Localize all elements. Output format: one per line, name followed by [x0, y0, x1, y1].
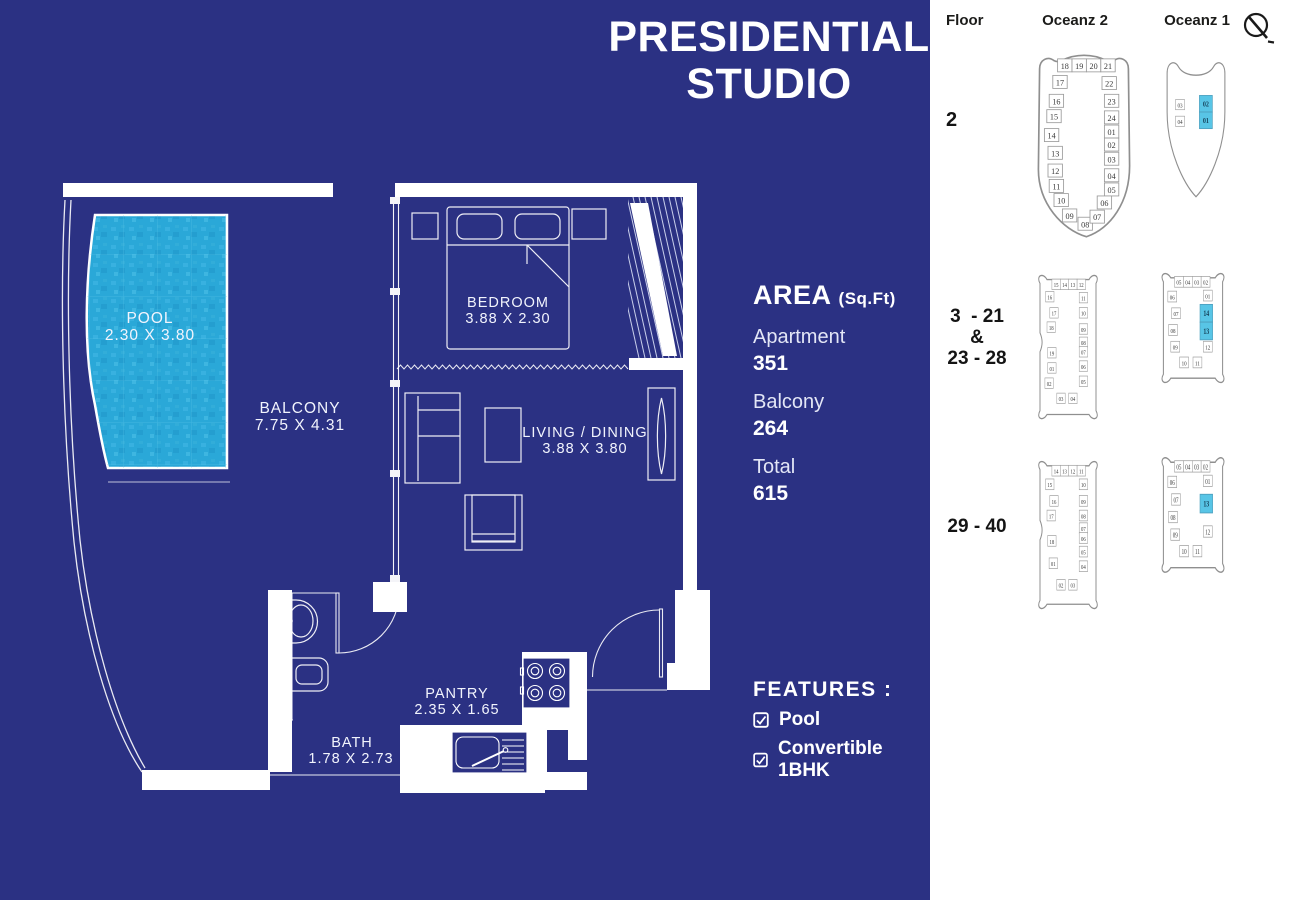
feature-item-convertible: Convertible 1BHK — [753, 738, 930, 782]
room-label-pantry: PANTRY — [425, 686, 488, 702]
unit-number: 05 — [1176, 280, 1181, 287]
unit-number: 02 — [1108, 141, 1116, 150]
wardrobe-zigzag — [397, 365, 628, 369]
pillow-left — [457, 214, 502, 239]
checkbox-checked-icon — [753, 752, 768, 768]
unit-number: 06 — [1170, 480, 1175, 487]
wall-pantry-step — [545, 772, 587, 790]
title-line-1: PRESIDENTIAL — [608, 14, 930, 61]
armchair-seat — [472, 495, 515, 542]
room-dims-balcony: 7.75 X 4.31 — [255, 417, 345, 434]
area-section: AREA (Sq.Ft) Apartment 351 Balcony 264 T… — [753, 280, 896, 506]
unit-number: 13 — [1203, 500, 1209, 509]
unit-number: 05 — [1108, 186, 1116, 195]
unit-number: 04 — [1177, 120, 1182, 127]
wall-bedroom-right — [629, 358, 697, 370]
coffee-table — [485, 408, 521, 462]
unit-number: 07 — [1081, 350, 1086, 357]
floor-range-label: 3 - 21&23 - 28 — [942, 306, 1012, 369]
unit-number: 04 — [1185, 465, 1190, 472]
unit-number: 08 — [1171, 328, 1176, 335]
unit-number: 24 — [1108, 114, 1116, 123]
unit-number: 09 — [1173, 345, 1178, 352]
bed — [447, 207, 569, 349]
floor-range-line: 2 — [946, 110, 1006, 131]
floor-locator-panel: Floor Oceanz 2 Oceanz 1 2181920211722162… — [930, 0, 1316, 900]
unit-number: 13 — [1071, 283, 1076, 290]
unit-number: 13 — [1062, 469, 1067, 476]
unit-number: 16 — [1047, 295, 1052, 302]
bedroom-furniture — [412, 207, 606, 349]
floorplate-diagram-oceanz1-row1: 03040201 — [1158, 54, 1234, 206]
unit-number: 08 — [1081, 514, 1086, 521]
room-label-living: LIVING / DINING — [522, 425, 647, 441]
unit-number: 12 — [1051, 167, 1059, 176]
unit-number: 09 — [1066, 212, 1074, 221]
wall-bottom-balcony — [142, 770, 270, 790]
unit-number: 02 — [1203, 465, 1208, 472]
area-value: 615 — [753, 482, 896, 506]
wall-bottom-kitchen — [400, 775, 545, 793]
unit-number: 08 — [1081, 220, 1089, 229]
room-dims-bedroom: 3.88 X 2.30 — [465, 311, 550, 327]
unit-number: 06 — [1100, 199, 1108, 208]
unit-number: 04 — [1071, 397, 1076, 404]
floorplate-diagram-oceanz1-row3: 05040302060107130812091011 — [1156, 454, 1230, 578]
unit-number: 09 — [1081, 327, 1086, 334]
wall-top-left — [63, 183, 333, 197]
room-label-balcony: BALCONY — [259, 400, 340, 417]
unit-number: 03 — [1059, 397, 1064, 404]
unit-number: 09 — [1173, 533, 1178, 540]
nightstand-right — [572, 209, 606, 239]
sofa — [405, 393, 460, 483]
unit-number: 14 — [1062, 283, 1067, 290]
locator-header-floor: Floor — [946, 12, 984, 29]
wall-right — [683, 183, 697, 590]
unit-number: 15 — [1050, 113, 1058, 122]
wall-top-right — [395, 183, 695, 197]
unit-number: 02 — [1047, 381, 1052, 388]
locator-header-oceanz2: Oceanz 2 — [1038, 12, 1112, 29]
floor-range-label: 29 - 40 — [942, 516, 1012, 537]
unit-number: 11 — [1081, 296, 1086, 303]
unit-number: 01 — [1205, 479, 1210, 486]
blueprint-panel: PRESIDENTIAL STUDIO — [0, 0, 930, 900]
locator-header-oceanz1: Oceanz 1 — [1161, 12, 1233, 29]
unit-number: 22 — [1105, 80, 1113, 89]
area-label: Apartment — [753, 326, 896, 349]
wall-entry-step — [667, 663, 710, 690]
unit-number: 08 — [1171, 516, 1176, 523]
unit-number: 10 — [1182, 361, 1187, 368]
floor-range-line: 23 - 28 — [942, 348, 1012, 369]
unit-number: 21 — [1104, 62, 1112, 71]
hull-outline — [1167, 63, 1225, 197]
unit-number: 10 — [1057, 197, 1065, 206]
pool — [87, 215, 230, 482]
unit-number: 04 — [1108, 172, 1116, 181]
unit-number: 12 — [1079, 283, 1084, 290]
unit-number: 06 — [1081, 536, 1086, 543]
floorplate-diagram-oceanz1-row2: 0504030206010714081309121011 — [1156, 270, 1230, 388]
area-heading-unit: (Sq.Ft) — [839, 289, 896, 308]
room-dims-living: 3.88 X 3.80 — [542, 441, 627, 457]
unit-number: 03 — [1177, 103, 1182, 110]
unit-number: 23 — [1108, 97, 1116, 106]
page: PRESIDENTIAL STUDIO — [0, 0, 1316, 900]
room-dims-pool: 2.30 X 3.80 — [105, 327, 195, 344]
entry-door-leaf — [660, 609, 663, 677]
floor-range-line: 3 - 21 — [942, 306, 1012, 327]
unit-number: 06 — [1170, 295, 1175, 302]
unit-number: 17 — [1056, 79, 1064, 88]
unit-number: 10 — [1081, 483, 1086, 490]
room-label-bath: BATH — [331, 735, 373, 751]
unit-number: 02 — [1203, 101, 1210, 109]
unit-number: 03 — [1194, 465, 1199, 472]
pillow-right — [515, 214, 560, 239]
room-dims-bath: 1.78 X 2.73 — [308, 751, 393, 767]
floor-range-line: 29 - 40 — [942, 516, 1012, 537]
floorplate-diagram-oceanz2-row1: 1819202117221623152414011302120311041005… — [1024, 50, 1144, 245]
wall-bath-left — [268, 590, 292, 772]
unit-number: 15 — [1047, 483, 1052, 490]
feature-label: Convertible 1BHK — [778, 738, 930, 782]
unit-number: 10 — [1081, 311, 1086, 318]
unit-number: 03 — [1108, 155, 1116, 164]
room-dims-pantry: 2.35 X 1.65 — [414, 702, 499, 718]
feature-label: Pool — [779, 709, 820, 731]
unit-number: 05 — [1081, 380, 1086, 387]
tv-cabinet — [648, 388, 675, 480]
wall-hall-block — [373, 582, 407, 612]
features-section: FEATURES : Pool Convertible 1BHK — [753, 678, 930, 782]
area-item-total: Total 615 — [753, 456, 896, 506]
floorplate-diagram-oceanz2-row3: 141312111510160917081807010602050304 — [1033, 458, 1103, 614]
unit-number: 02 — [1059, 583, 1064, 590]
unit-number: 16 — [1052, 499, 1057, 506]
unit-number: 07 — [1173, 498, 1178, 505]
unit-number: 18 — [1061, 62, 1069, 71]
unit-number: 11 — [1052, 183, 1060, 192]
blanket-fold — [447, 245, 569, 287]
feature-item-pool: Pool — [753, 709, 930, 731]
area-item-balcony: Balcony 264 — [753, 391, 896, 441]
wall-right-lower — [675, 590, 710, 668]
unit-number: 10 — [1182, 550, 1187, 557]
kitchen-sink — [452, 732, 527, 773]
unit-number: 18 — [1049, 325, 1054, 332]
north-arrow-icon — [1240, 8, 1278, 48]
unit-number: 11 — [1195, 361, 1200, 368]
area-label: Balcony — [753, 391, 896, 414]
area-item-apartment: Apartment 351 — [753, 326, 896, 376]
floorplan-drawing: POOL 2.30 X 3.80 BALCONY 7.75 X 4.31 BED… — [55, 170, 715, 810]
unit-number: 01 — [1203, 118, 1210, 126]
area-heading-text: AREA — [753, 280, 831, 310]
unit-number: 14 — [1054, 469, 1059, 476]
floor-range-label: 2 — [946, 110, 1006, 131]
entry-door-arc — [593, 610, 660, 677]
unit-number: 07 — [1173, 312, 1178, 319]
unit-number: 17 — [1052, 311, 1057, 318]
unit-number: 20 — [1090, 62, 1098, 71]
unit-number: 05 — [1176, 465, 1181, 472]
nightstand-left — [412, 213, 438, 239]
area-value: 351 — [753, 352, 896, 376]
unit-number: 12 — [1205, 345, 1210, 352]
unit-number: 18 — [1050, 539, 1055, 546]
page-title: PRESIDENTIAL STUDIO — [608, 14, 930, 108]
unit-number: 03 — [1071, 583, 1076, 590]
unit-number: 09 — [1081, 499, 1086, 506]
tv-screen — [657, 398, 665, 474]
unit-number: 01 — [1051, 562, 1056, 569]
room-label-pool: POOL — [126, 310, 173, 327]
toilet-seat — [296, 665, 322, 684]
room-label-bedroom: BEDROOM — [467, 295, 549, 311]
sofa-cushions — [418, 396, 460, 481]
unit-number: 04 — [1081, 565, 1086, 572]
area-value: 264 — [753, 417, 896, 441]
unit-number: 03 — [1194, 280, 1199, 287]
features-heading: FEATURES : — [753, 678, 930, 702]
sliding-door-divider — [390, 197, 400, 582]
unit-number: 15 — [1054, 283, 1059, 290]
unit-number: 01 — [1108, 128, 1116, 137]
bath-door-leaf — [336, 593, 339, 653]
unit-number: 01 — [1205, 294, 1210, 301]
checkbox-checked-icon — [753, 712, 769, 728]
unit-number: 13 — [1203, 327, 1209, 336]
unit-number: 12 — [1205, 530, 1210, 537]
unit-number: 06 — [1081, 364, 1086, 371]
unit-number: 19 — [1050, 351, 1055, 358]
title-line-2: STUDIO — [608, 61, 930, 108]
unit-number: 16 — [1052, 97, 1060, 106]
unit-number: 11 — [1079, 469, 1084, 476]
floor-range-line: & — [942, 327, 1012, 348]
unit-number: 01 — [1050, 366, 1055, 373]
unit-number: 19 — [1075, 62, 1083, 71]
area-heading: AREA (Sq.Ft) — [753, 280, 896, 311]
armchair-lines — [472, 534, 515, 541]
area-label: Total — [753, 456, 896, 479]
unit-number: 14 — [1048, 132, 1056, 141]
unit-number: 14 — [1203, 309, 1209, 318]
unit-number: 11 — [1195, 550, 1200, 557]
unit-number: 13 — [1051, 149, 1059, 158]
unit-number: 17 — [1049, 514, 1054, 521]
unit-number: 07 — [1093, 213, 1101, 222]
unit-number: 04 — [1185, 280, 1190, 287]
unit-number: 12 — [1071, 469, 1076, 476]
unit-number: 05 — [1081, 550, 1086, 557]
living-furniture — [405, 388, 675, 550]
unit-number: 02 — [1203, 280, 1208, 287]
floorplate-diagram-oceanz2-row2: 15141312161117101809190801070206030504 — [1033, 272, 1103, 424]
